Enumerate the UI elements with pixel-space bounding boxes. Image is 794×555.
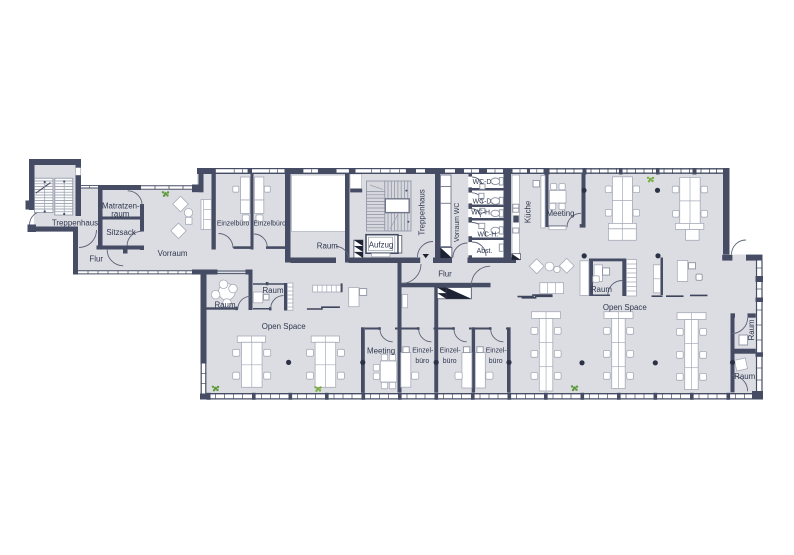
svg-text:Einzelbüro: Einzelbüro [253,221,286,228]
svg-text:büro: büro [415,358,429,365]
svg-text:Einzel-: Einzel- [486,347,507,354]
svg-text:Open Space: Open Space [262,322,306,331]
svg-text:Raum: Raum [591,285,612,294]
svg-text:WC-H.: WC-H. [471,209,492,216]
svg-text:büro: büro [443,358,457,365]
svg-text:Treppenhaus: Treppenhaus [418,189,427,235]
svg-text:Flur: Flur [89,255,103,264]
svg-text:Open Space: Open Space [603,303,647,312]
svg-text:Aufzug: Aufzug [369,240,394,249]
svg-text:raum: raum [111,209,129,218]
svg-text:Raum: Raum [214,300,235,309]
svg-text:Sitzsack: Sitzsack [106,228,135,237]
svg-text:Küche: Küche [524,200,533,223]
svg-text:Vorraum WC: Vorraum WC [454,203,461,242]
svg-text:Treppenhaus: Treppenhaus [52,218,98,227]
svg-text:Raum: Raum [262,286,283,295]
svg-text:büro: büro [489,358,503,365]
svg-text:WC-D.: WC-D. [473,198,494,205]
svg-text:Meeting: Meeting [546,209,574,218]
svg-text:Flur: Flur [438,269,452,278]
svg-text:Meeting: Meeting [367,347,395,356]
svg-text:Einzel-: Einzel- [412,347,433,354]
svg-text:Einzel-: Einzel- [440,347,461,354]
svg-text:Raum: Raum [317,242,338,251]
svg-text:Raum: Raum [747,319,756,340]
svg-text:Einzelbüro: Einzelbüro [217,221,250,228]
svg-text:Raum: Raum [734,372,755,381]
svg-text:Abst.: Abst. [477,248,493,255]
svg-text:WC-D.: WC-D. [473,179,494,186]
svg-text:WC-H.: WC-H. [477,232,498,239]
svg-text:Vorraum: Vorraum [158,249,188,258]
